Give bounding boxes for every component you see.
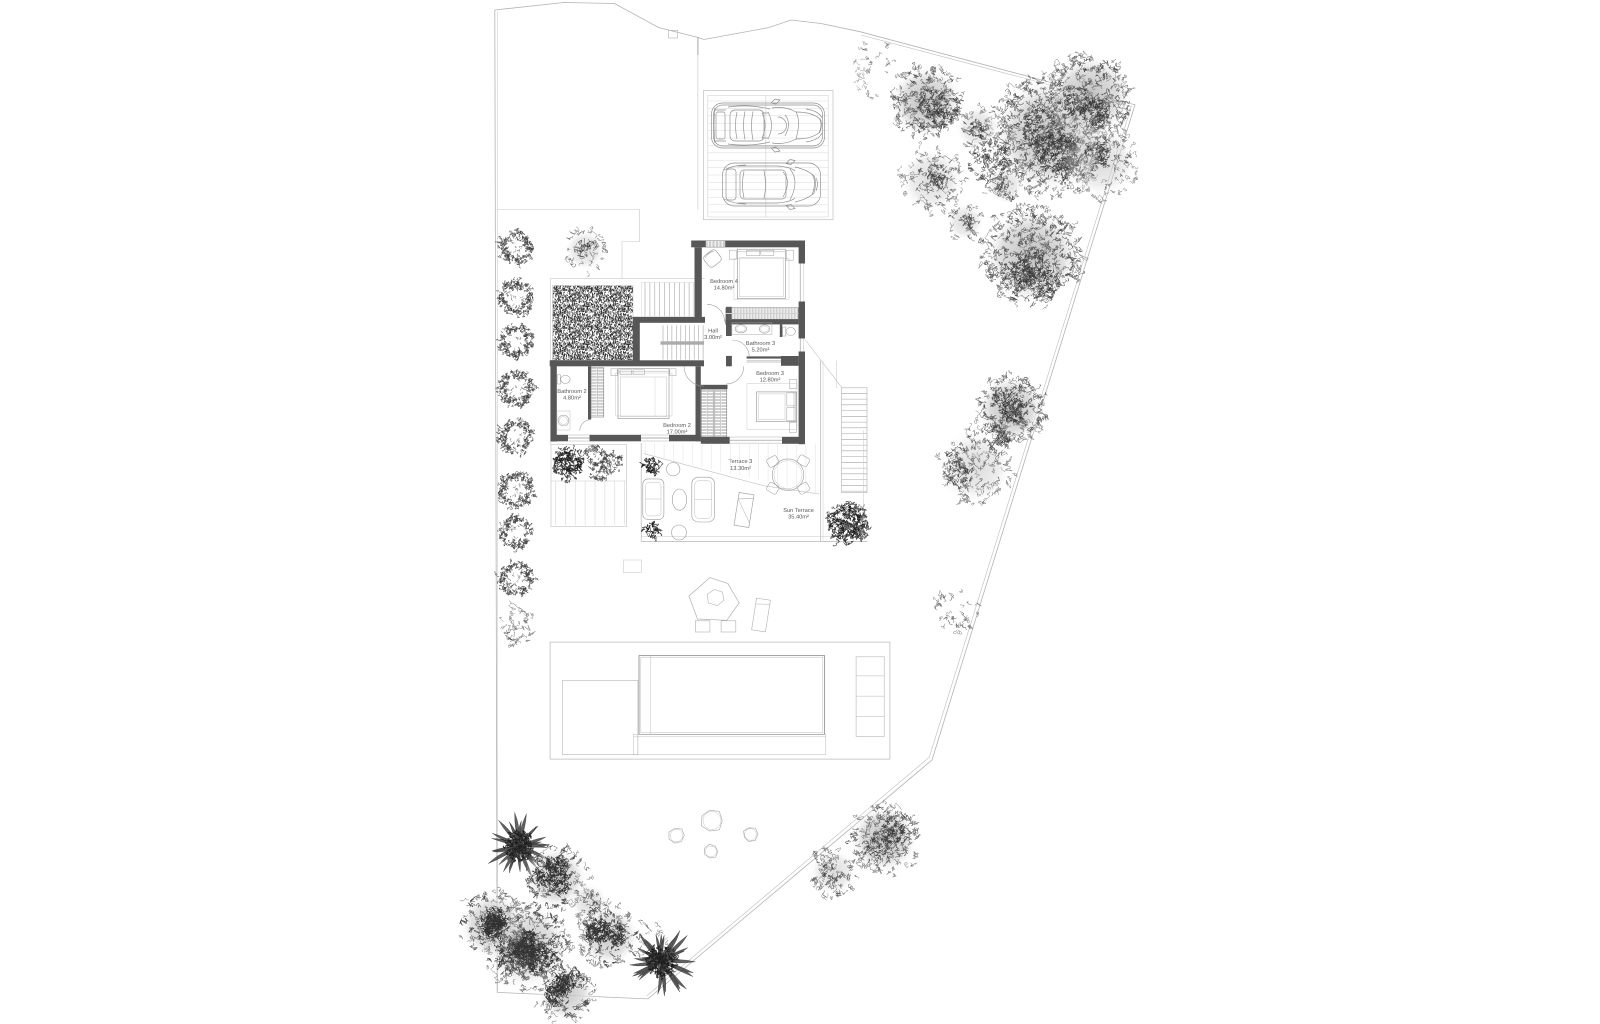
- svg-text:Bedroom 2: Bedroom 2: [663, 422, 691, 429]
- svg-text:12.80m²: 12.80m²: [760, 377, 781, 383]
- svg-text:13.30m²: 13.30m²: [730, 466, 751, 472]
- svg-text:Bathroom 3: Bathroom 3: [746, 340, 775, 347]
- svg-text:14.80m²: 14.80m²: [714, 285, 735, 291]
- svg-text:4.80m²: 4.80m²: [563, 395, 581, 401]
- svg-text:Sun Terrace: Sun Terrace: [783, 508, 814, 514]
- svg-text:5.20m²: 5.20m²: [752, 347, 770, 353]
- svg-text:Terrace 3: Terrace 3: [729, 459, 753, 465]
- svg-text:Bathroom 2: Bathroom 2: [557, 388, 586, 395]
- svg-text:Bedroom 3: Bedroom 3: [756, 370, 784, 377]
- svg-text:17.00m²: 17.00m²: [667, 429, 688, 435]
- svg-text:Bedroom 4: Bedroom 4: [710, 278, 738, 285]
- svg-text:3.00m²: 3.00m²: [704, 335, 722, 341]
- svg-text:35.40m²: 35.40m²: [788, 514, 809, 520]
- svg-text:Hall: Hall: [708, 327, 718, 334]
